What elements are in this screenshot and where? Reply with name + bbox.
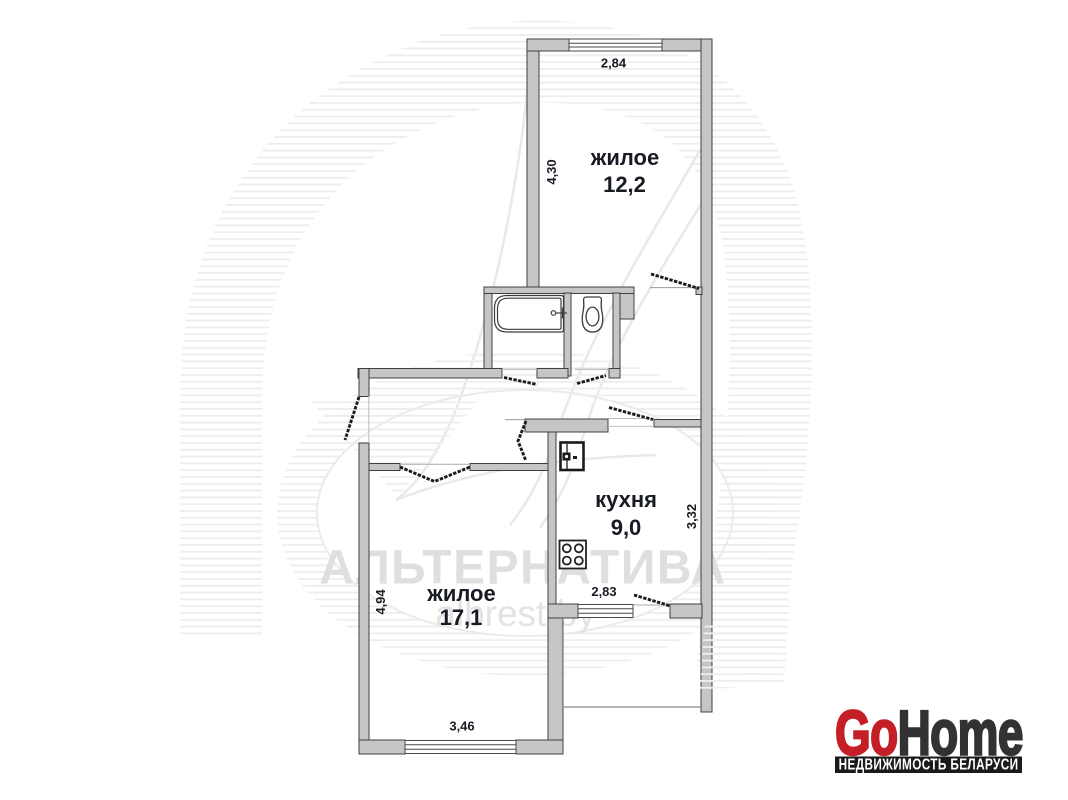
svg-text:9,0: 9,0	[611, 515, 642, 540]
svg-text:кухня: кухня	[595, 487, 657, 512]
svg-text:АЛЬТЕРНАТИВА: АЛЬТЕРНАТИВА	[319, 542, 727, 595]
svg-text:17,1: 17,1	[440, 605, 483, 630]
svg-text:4,94: 4,94	[373, 589, 388, 615]
svg-text:12,2: 12,2	[603, 172, 646, 197]
svg-text:жилое: жилое	[426, 581, 495, 606]
svg-text:2,83: 2,83	[591, 584, 616, 599]
svg-text:3,32: 3,32	[684, 504, 699, 529]
svg-text:4,30: 4,30	[544, 159, 559, 184]
svg-text:2,84: 2,84	[601, 56, 627, 71]
svg-text:жилое: жилое	[590, 145, 659, 170]
svg-text:НЕДВИЖИМОСТЬ БЕЛАРУСИ: НЕДВИЖИМОСТЬ БЕЛАРУСИ	[839, 756, 1019, 773]
svg-text:3,46: 3,46	[449, 719, 474, 734]
